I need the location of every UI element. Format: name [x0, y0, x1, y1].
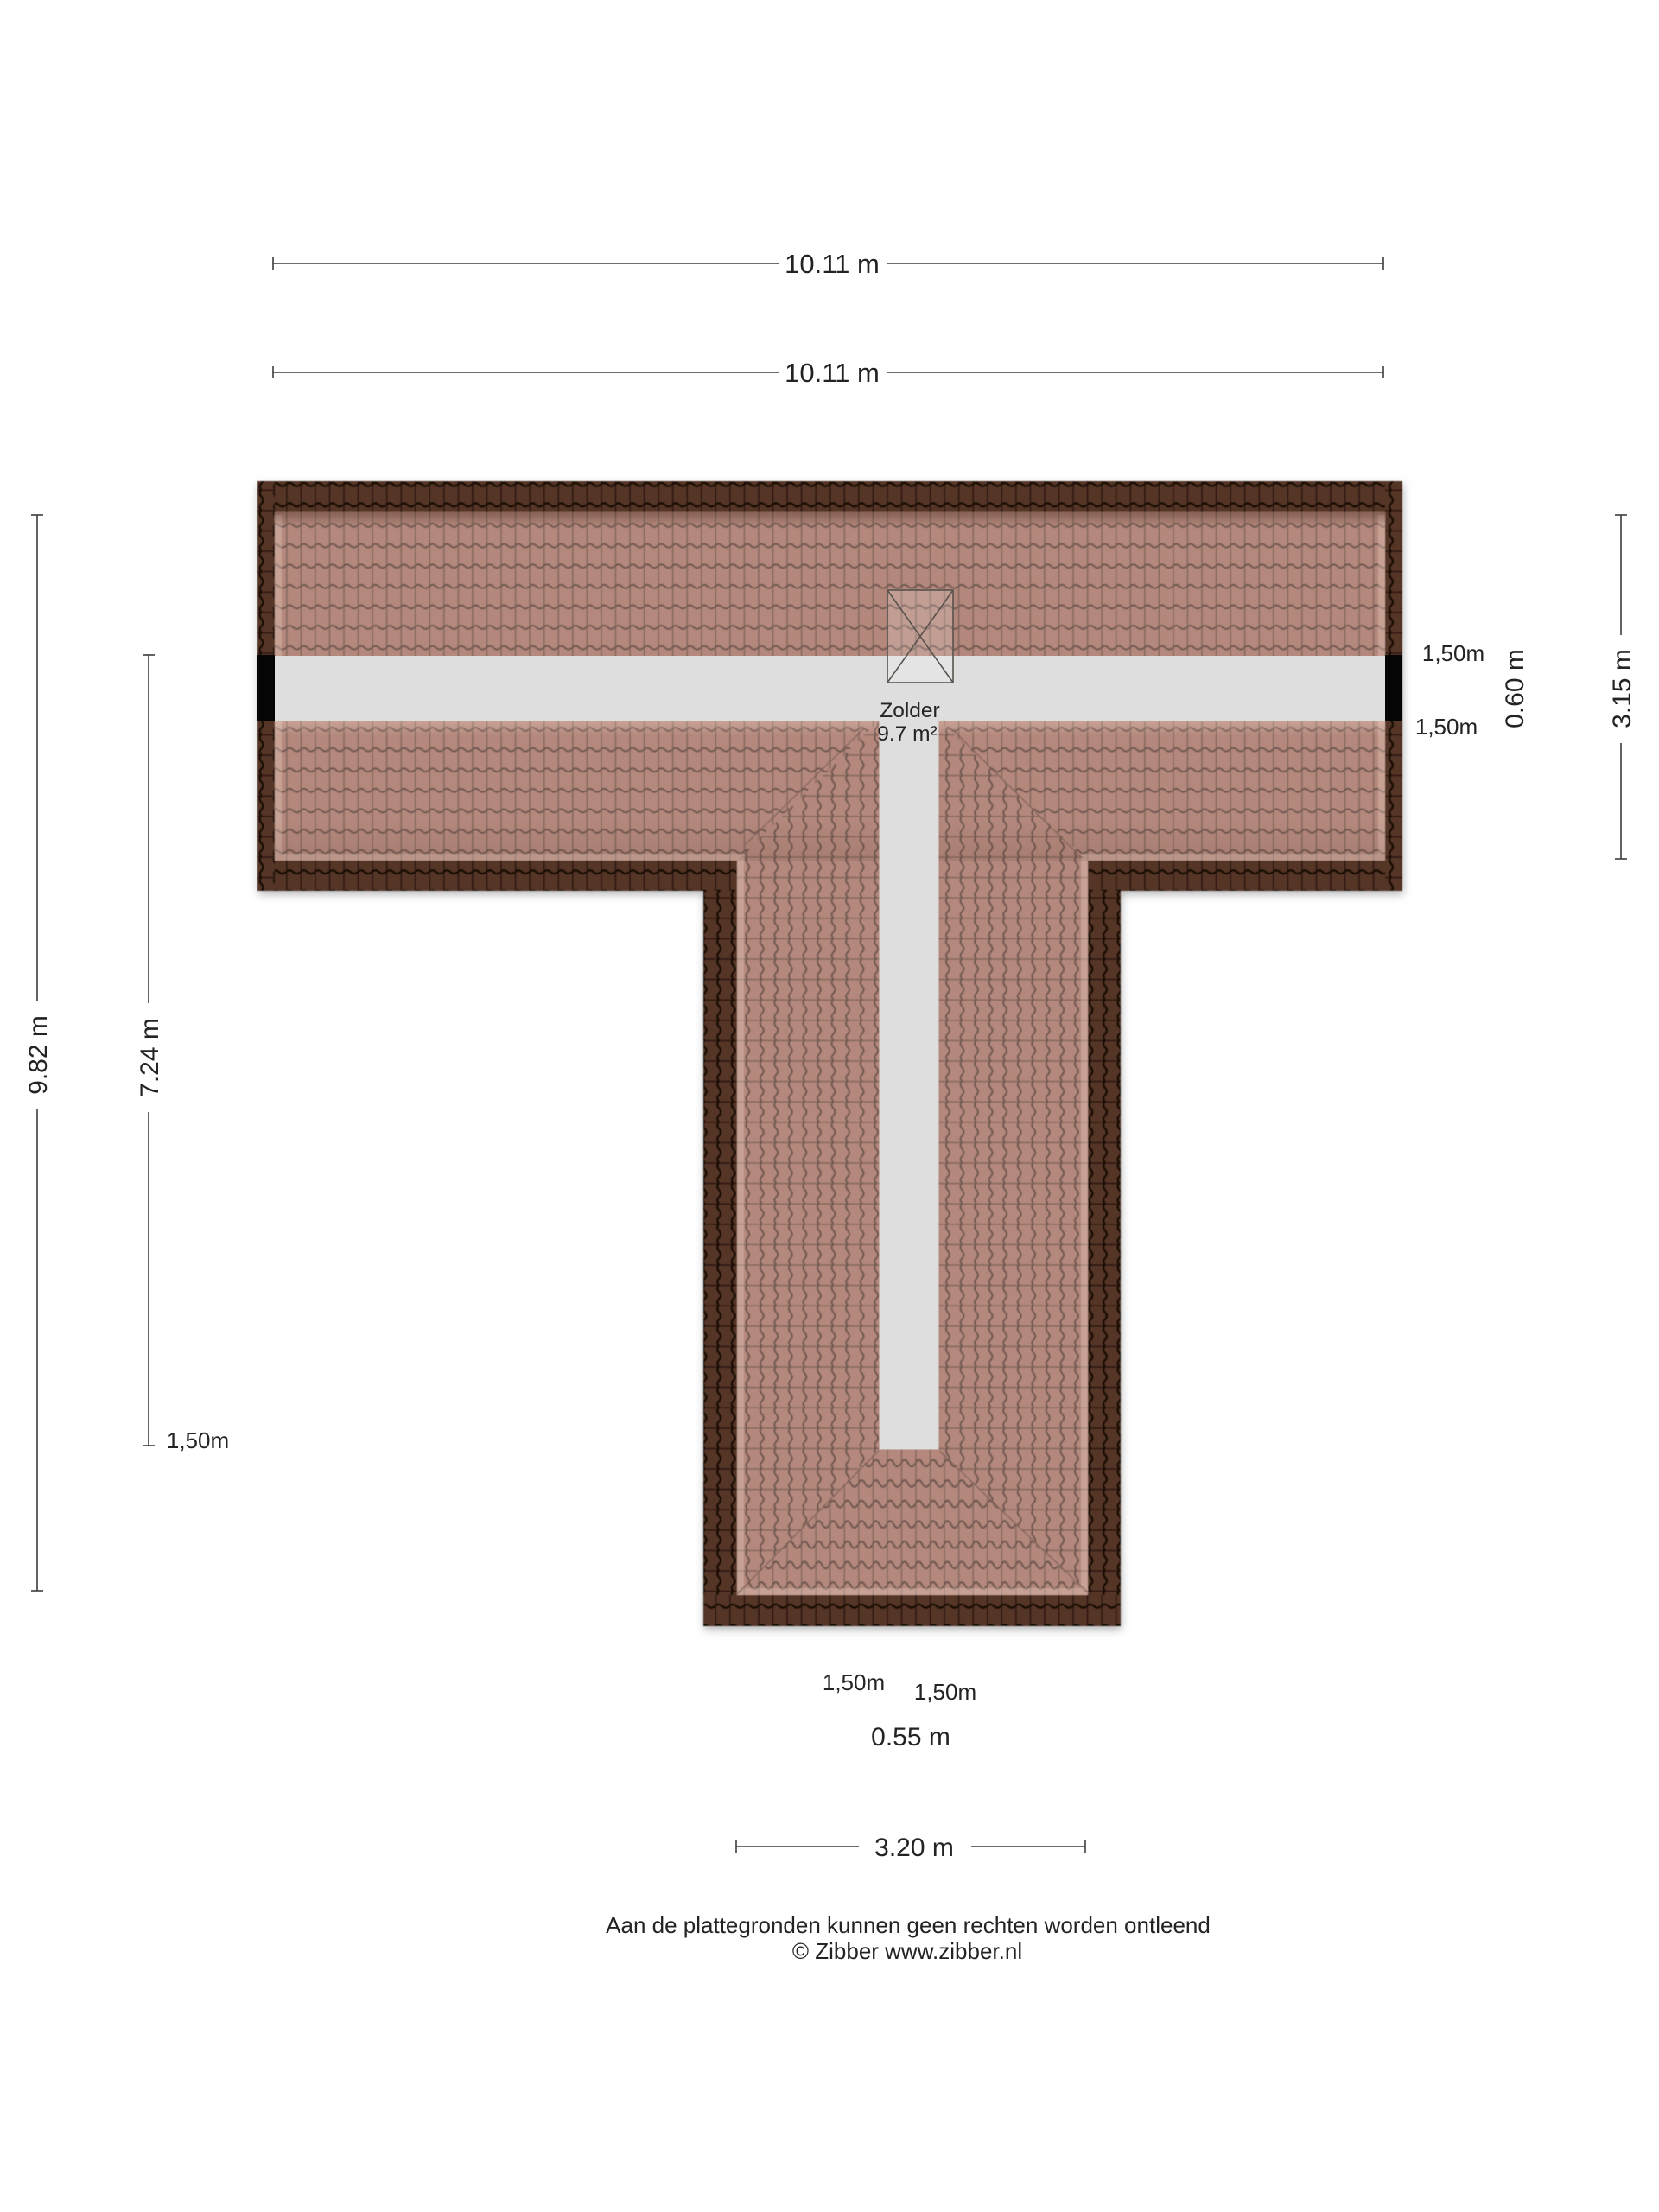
svg-text:Zolder: Zolder [880, 699, 939, 722]
svg-text:1,50m: 1,50m [1415, 714, 1478, 740]
svg-text:© Zibber www.zibber.nl: © Zibber www.zibber.nl [792, 1938, 1022, 1964]
svg-text:10.11 m: 10.11 m [785, 358, 880, 388]
svg-text:10.11 m: 10.11 m [785, 249, 880, 279]
svg-text:9.7 m²: 9.7 m² [877, 722, 937, 746]
svg-text:0.60 m: 0.60 m [1501, 649, 1529, 728]
svg-text:1,50m: 1,50m [914, 1679, 976, 1705]
svg-text:1,50m: 1,50m [823, 1669, 885, 1695]
svg-text:1,50m: 1,50m [167, 1427, 229, 1453]
svg-text:9.82 m: 9.82 m [24, 1015, 53, 1095]
svg-text:3.15 m: 3.15 m [1608, 649, 1637, 728]
svg-text:7.24 m: 7.24 m [136, 1018, 164, 1097]
svg-text:3.20 m: 3.20 m [874, 1834, 954, 1862]
svg-text:1,50m: 1,50m [1422, 640, 1484, 666]
svg-text:Aan de plattegronden kunnen ge: Aan de plattegronden kunnen geen rechten… [606, 1912, 1211, 1938]
svg-text:0.55 m: 0.55 m [871, 1723, 950, 1751]
